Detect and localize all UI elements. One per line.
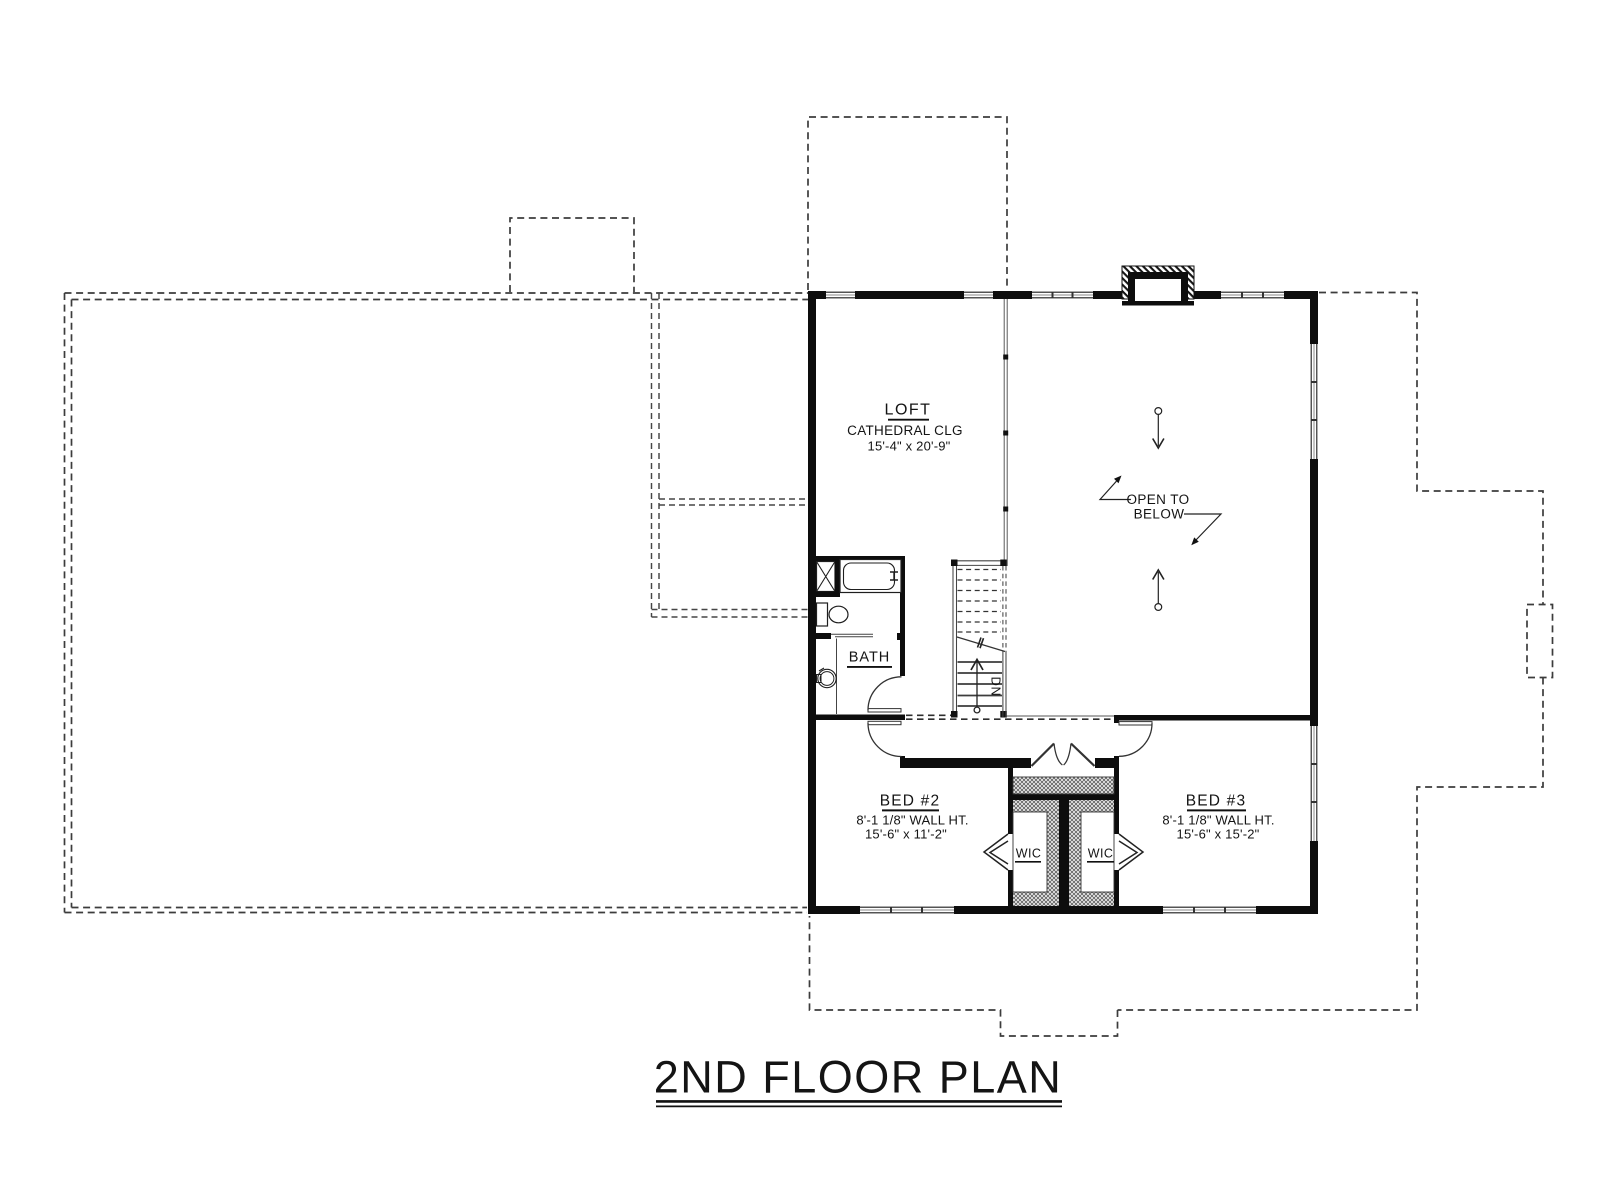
svg-text:2ND FLOOR PLAN: 2ND FLOOR PLAN xyxy=(654,1052,1063,1103)
svg-text:CATHEDRAL CLG: CATHEDRAL CLG xyxy=(847,423,963,438)
svg-text:BELOW: BELOW xyxy=(1134,507,1185,522)
svg-text:LOFT: LOFT xyxy=(885,402,932,419)
svg-text:15'-6" x 15'-2": 15'-6" x 15'-2" xyxy=(1177,826,1260,841)
svg-text:DN: DN xyxy=(989,677,1004,697)
svg-text:BATH: BATH xyxy=(849,650,891,666)
svg-text:8'-1 1/8" WALL HT.: 8'-1 1/8" WALL HT. xyxy=(856,813,968,828)
svg-text:BED #2: BED #2 xyxy=(880,793,941,810)
svg-text:WIC: WIC xyxy=(1088,847,1114,861)
svg-text:8'-1 1/8" WALL HT.: 8'-1 1/8" WALL HT. xyxy=(1162,813,1274,828)
svg-text:15'-6" x 11'-2": 15'-6" x 11'-2" xyxy=(865,826,947,841)
svg-text:WIC: WIC xyxy=(1016,847,1042,861)
svg-text:OPEN TO: OPEN TO xyxy=(1126,492,1189,507)
svg-text:BED #3: BED #3 xyxy=(1186,793,1247,810)
svg-text:15'-4" x 20'-9": 15'-4" x 20'-9" xyxy=(868,439,951,454)
